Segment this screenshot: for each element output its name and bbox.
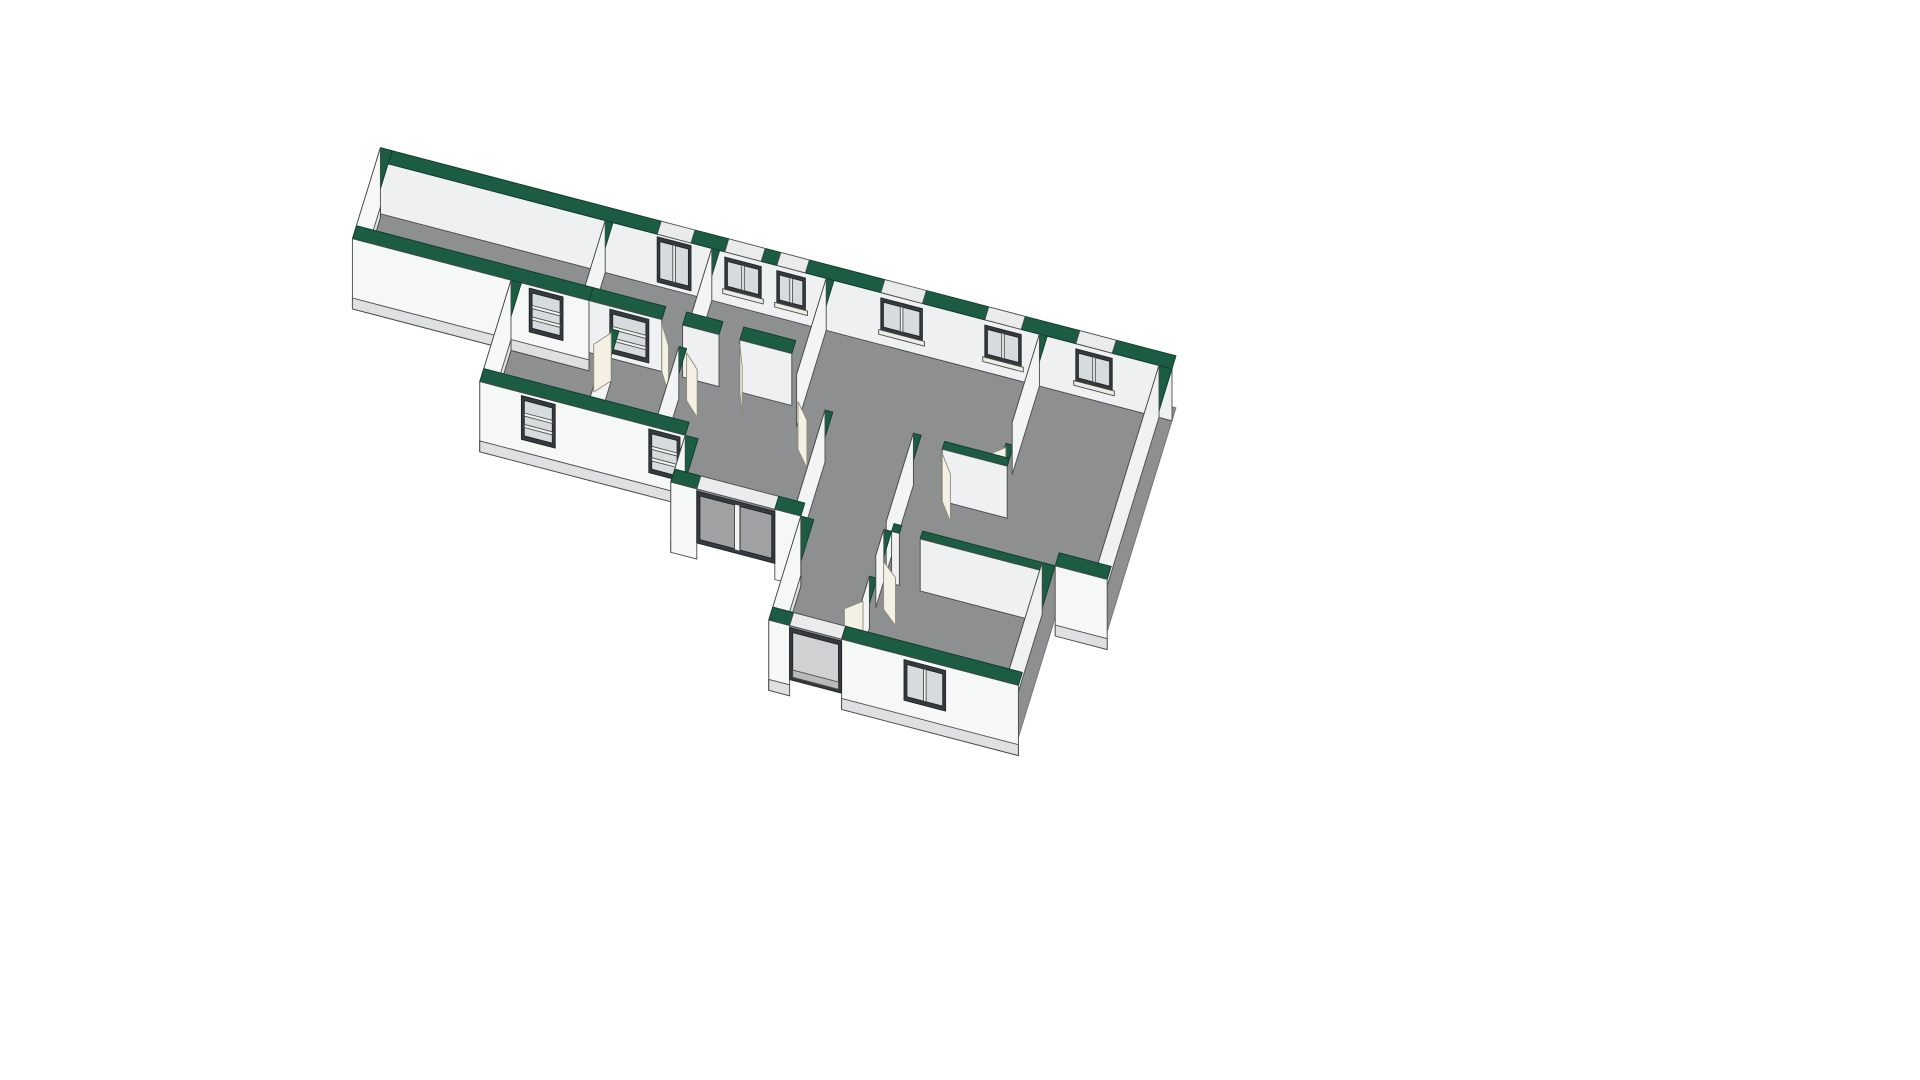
window-mullion — [924, 669, 927, 702]
window-mullion — [1002, 333, 1005, 359]
viewport: Axonometric 3D section view of a single-… — [0, 0, 1920, 1080]
model-faces — [352, 148, 1176, 756]
window-mullion — [1093, 357, 1096, 383]
sliding-door-stile — [735, 504, 741, 551]
sliding-door-glass — [700, 496, 735, 549]
patio-wall-outer — [671, 482, 697, 559]
sliding-door-glass — [740, 506, 772, 558]
window-mullion — [790, 278, 793, 304]
window-mullion — [742, 265, 745, 291]
window-mullion — [673, 245, 676, 283]
window-mullion — [900, 307, 903, 333]
floorplan-3d-view: Axonometric 3D section view of a single-… — [0, 0, 1920, 1080]
